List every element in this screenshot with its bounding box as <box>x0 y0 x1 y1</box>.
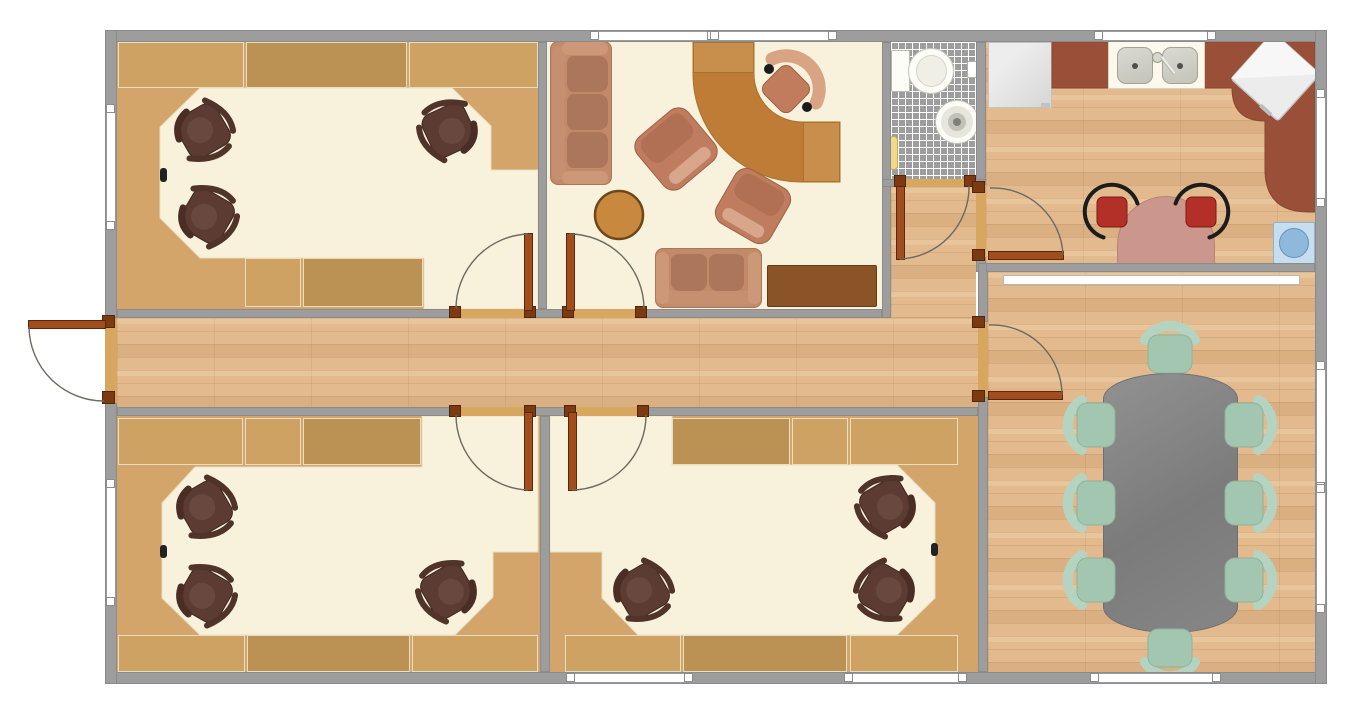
door-lounge-leaf <box>566 233 575 311</box>
window-handle <box>828 31 837 40</box>
door-bathroom-leaf <box>896 186 905 260</box>
sofa-back <box>661 291 756 305</box>
office-a-credenza-2 <box>409 42 538 88</box>
window-kitchen-east <box>1316 93 1326 203</box>
window-office-c-south-1 <box>570 673 689 683</box>
office-a-credenza-3 <box>245 258 301 307</box>
sofa-cushion <box>709 251 745 291</box>
office-a-desk-2 <box>303 258 423 307</box>
office-c-credenza-4 <box>850 635 958 672</box>
toilet-seat <box>916 55 947 87</box>
office-b-credenza-3 <box>118 635 245 672</box>
kitchen-side-unit <box>1273 222 1315 264</box>
office-c-desk-1 <box>672 418 790 465</box>
office-a-credenza-1 <box>118 42 244 88</box>
window-handle <box>1316 484 1325 493</box>
window-handle <box>1316 198 1325 207</box>
office-b-desk-1 <box>303 418 421 465</box>
door-office-a-leaf <box>524 233 533 311</box>
kitchen-sink <box>1108 39 1205 89</box>
kitchen-appliance <box>988 42 1052 108</box>
entrance-door-leaf <box>28 320 106 329</box>
office-c-credenza-2 <box>850 418 958 465</box>
office-a-desk-1 <box>246 42 407 88</box>
door-kitchen-post <box>972 249 985 261</box>
office-b-credenza-4 <box>412 635 538 672</box>
window-conference-east-2 <box>1316 488 1326 609</box>
office-c-credenza-3 <box>565 635 681 672</box>
office-b-credenza-1 <box>118 418 243 465</box>
window-handle <box>1212 673 1221 682</box>
door-kitchen-post <box>972 181 985 193</box>
wall-corridor-north-3 <box>641 309 882 318</box>
window-handle <box>106 221 115 230</box>
office-b-desk-2 <box>247 635 410 672</box>
sofa-cushion <box>671 251 707 291</box>
window-handle <box>684 673 693 682</box>
office-c-desk-2 <box>683 635 847 672</box>
desk-grommet <box>931 543 938 556</box>
wall-corridor-south-1 <box>117 407 455 416</box>
entrance-door-post <box>102 391 115 404</box>
door-office-b-post <box>449 405 461 417</box>
sofa-armrest <box>656 252 669 304</box>
window-kitchen-north <box>1098 31 1212 41</box>
corridor-floor <box>117 318 985 407</box>
wall-conference-west-2 <box>978 397 988 672</box>
window-conference-east-1 <box>1316 365 1326 487</box>
wall-office-a-lounge <box>538 42 547 309</box>
window-lounge-north-2 <box>714 31 833 41</box>
window-handle <box>1316 89 1325 98</box>
presentation-board <box>1003 275 1300 285</box>
window-handle <box>1316 604 1325 613</box>
wall-bathroom-kitchen <box>976 42 986 185</box>
wall-conference-north <box>986 263 1315 272</box>
desk-grommet <box>160 545 167 558</box>
unit-bowl <box>1279 228 1309 258</box>
door-office-b-threshold <box>455 407 530 416</box>
door-kitchen-threshold <box>976 185 986 257</box>
sofa-cushion <box>564 94 608 130</box>
door-conference-post <box>972 316 985 328</box>
door-office-b-leaf <box>524 412 533 491</box>
window-office-a-west <box>106 108 116 226</box>
office-c-credenza-1 <box>792 418 848 465</box>
toilet <box>891 47 955 95</box>
window-handle <box>1090 673 1099 682</box>
door-office-c-post <box>637 405 649 417</box>
sofa-armrest <box>562 171 608 184</box>
window-handle <box>1316 361 1325 370</box>
window-conference-south <box>1094 673 1217 683</box>
lounge-console <box>767 265 877 307</box>
window-handle <box>844 673 853 682</box>
door-conference-threshold <box>978 322 988 397</box>
door-lounge-threshold <box>566 309 641 318</box>
window-handle <box>1094 31 1103 40</box>
window-handle <box>1207 31 1216 40</box>
door-conference-post <box>972 390 985 402</box>
window-handle <box>958 673 967 682</box>
washbasin <box>935 100 979 144</box>
window-office-c-south-2 <box>848 673 963 683</box>
door-office-a-post <box>449 306 461 318</box>
desk-grommet <box>160 168 167 182</box>
window-handle <box>106 104 115 113</box>
window-handle <box>106 479 115 488</box>
window-handle <box>106 597 115 606</box>
window-handle <box>710 31 719 40</box>
door-office-c-threshold <box>568 407 643 416</box>
wall-corridor-south-3 <box>643 407 978 416</box>
sink-basin <box>1117 47 1153 84</box>
office-b-credenza-2 <box>245 418 301 465</box>
reception-desk-end-2 <box>803 122 840 182</box>
wall-corridor-north-1 <box>117 309 455 318</box>
wall-office-b-c <box>540 416 550 672</box>
sofa-cushion <box>564 56 608 92</box>
door-office-a-threshold <box>455 309 530 318</box>
sofa-armrest <box>748 252 761 304</box>
door-lounge-post <box>635 306 647 318</box>
sink-drain <box>1132 63 1138 69</box>
floor-plan-canvas <box>0 0 1354 724</box>
appliance-handle <box>1041 103 1050 107</box>
reception-desk-end-1 <box>693 42 754 73</box>
sofa-cushion <box>564 132 608 168</box>
door-bathroom-threshold <box>900 179 970 187</box>
sofa-armrest <box>562 42 608 55</box>
window-lounge-north-1 <box>594 31 712 41</box>
lounge-loveseat <box>655 248 762 308</box>
conference-table <box>1103 373 1238 633</box>
door-office-c-leaf <box>568 412 577 491</box>
basin-drain <box>953 118 961 126</box>
window-handle <box>566 673 575 682</box>
door-kitchen-leaf <box>988 251 1064 260</box>
lounge-sofa-3seat <box>550 41 612 185</box>
door-conference-leaf <box>988 391 1063 400</box>
sink-drain <box>1177 63 1183 69</box>
window-handle <box>590 31 599 40</box>
window-office-b-west <box>106 483 116 602</box>
